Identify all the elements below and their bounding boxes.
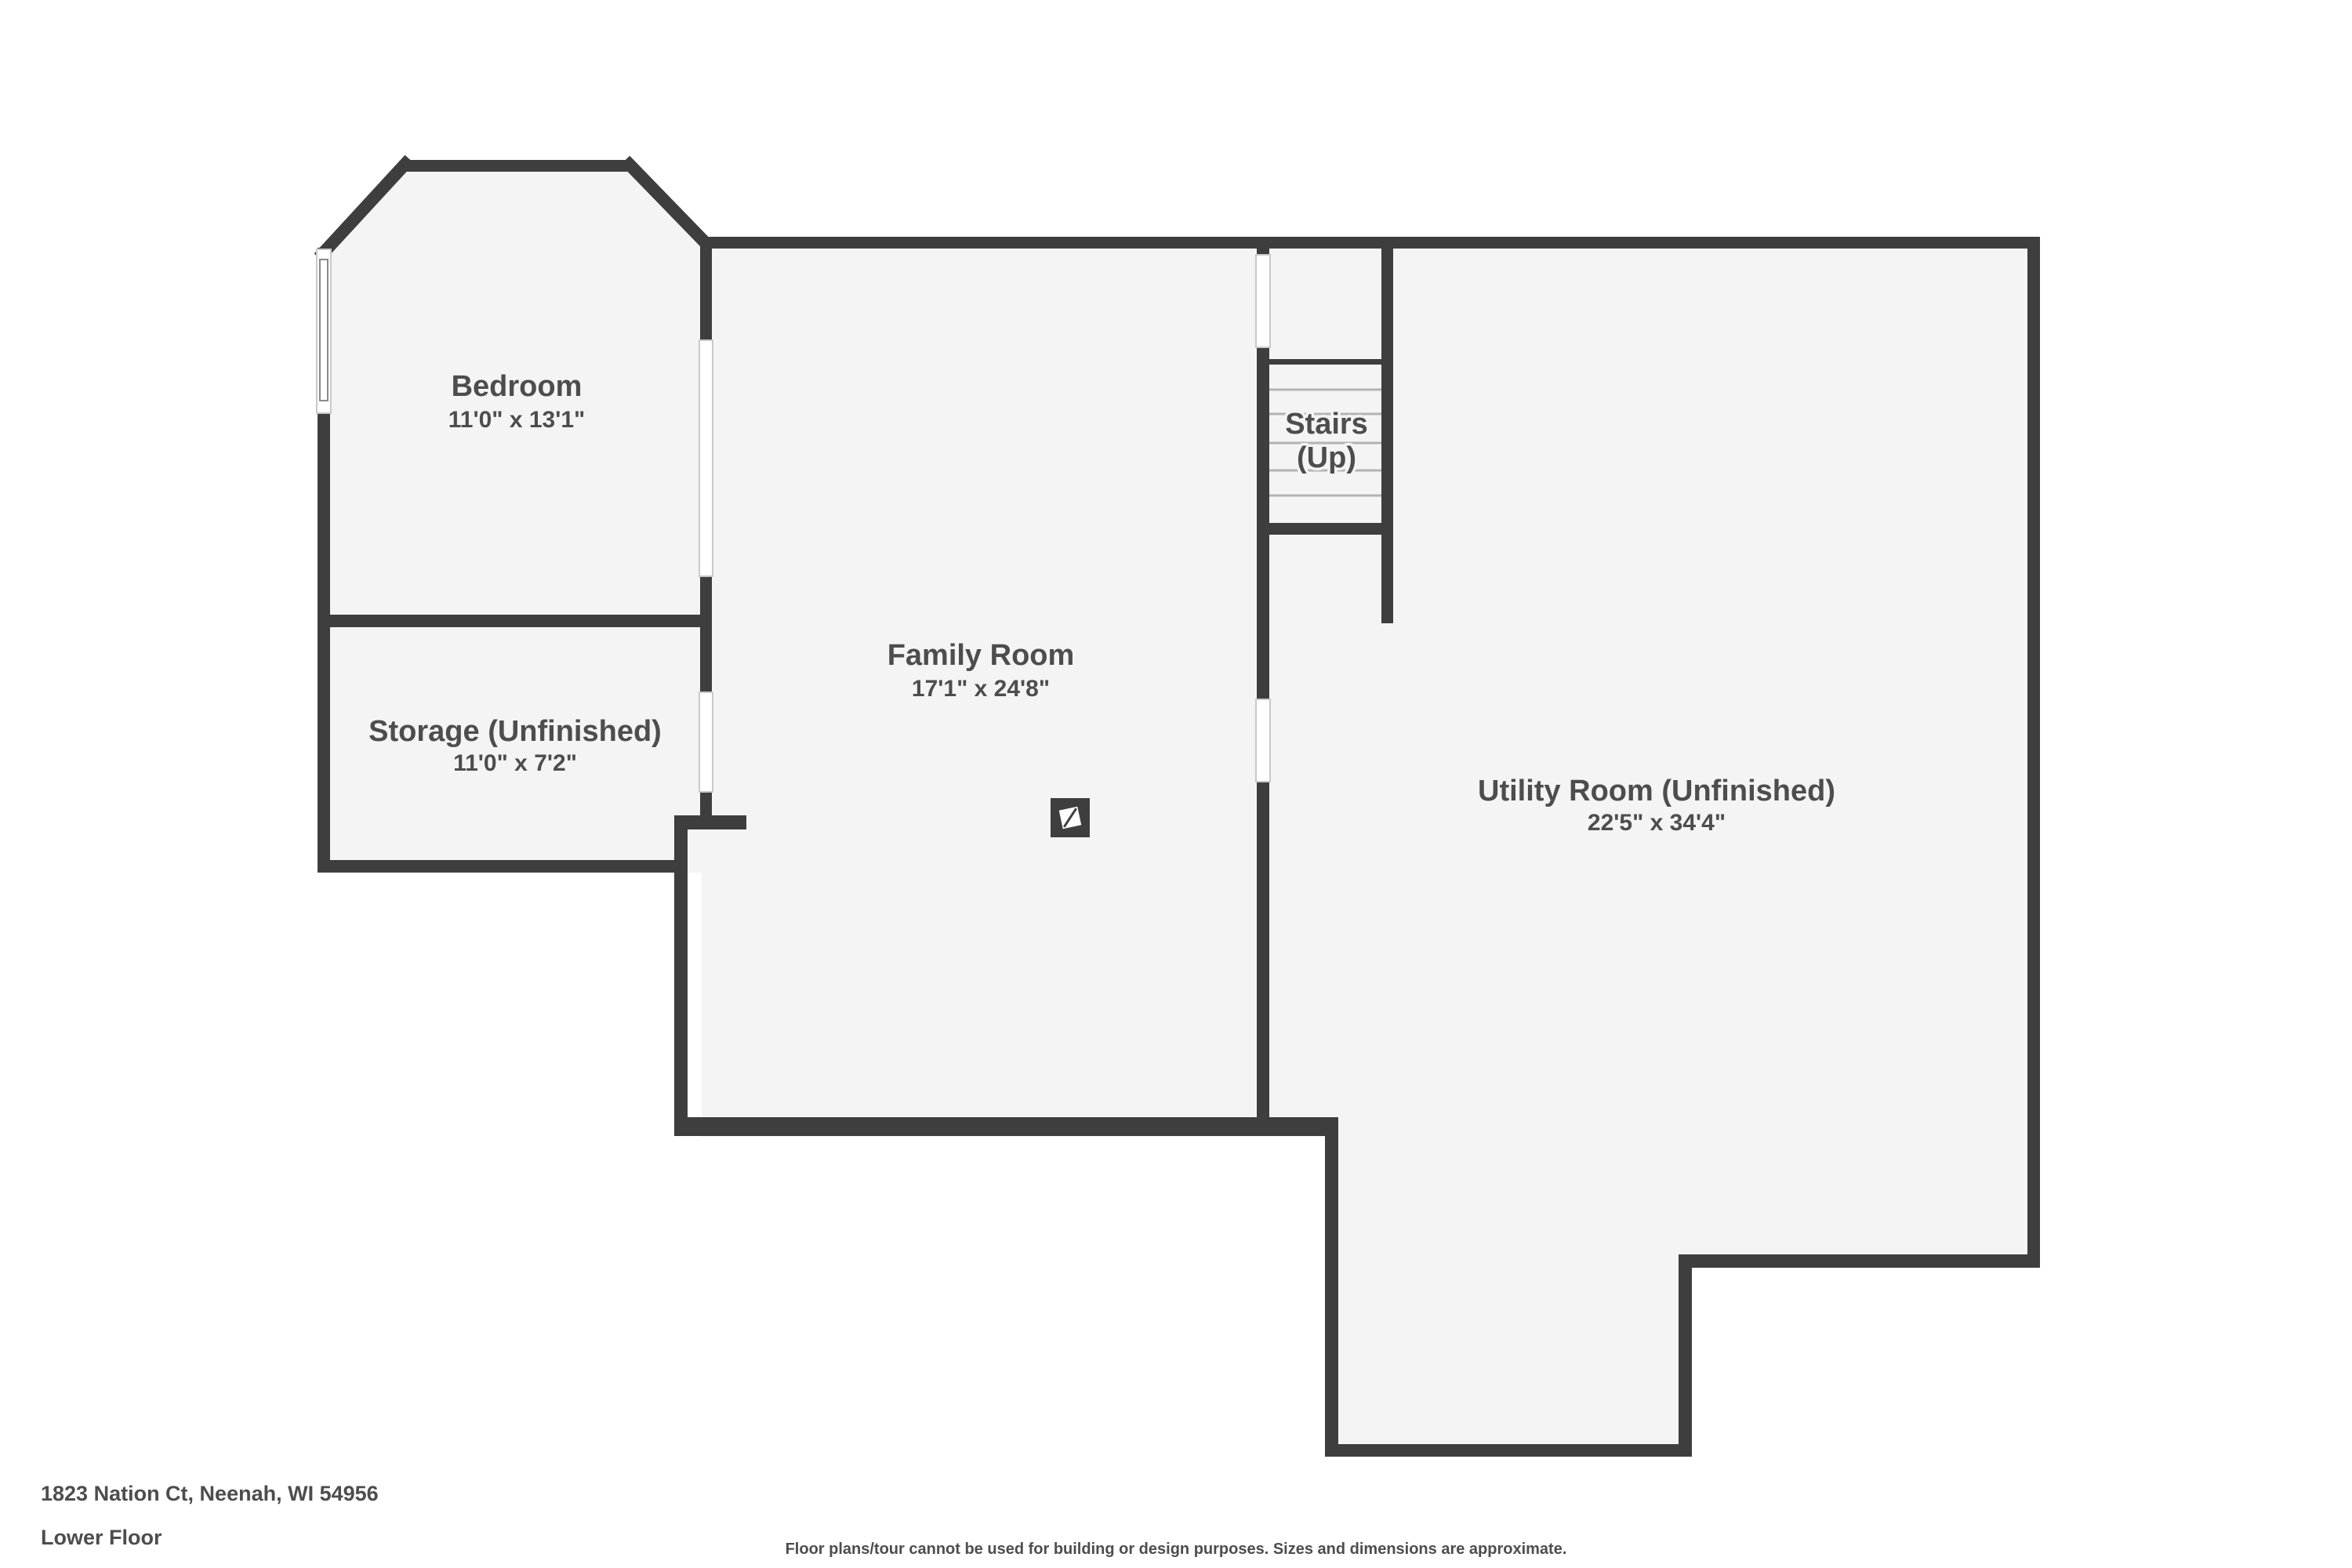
stairs-bottom-wall bbox=[1257, 523, 1393, 535]
family-utility-divider-wall bbox=[1257, 237, 1269, 1117]
utility-door-opening bbox=[1256, 699, 1270, 782]
utility-bottom-wall bbox=[1679, 1254, 2040, 1268]
extension-bottom-wall bbox=[1325, 1444, 1692, 1457]
bedroom-label: Bedroom bbox=[452, 370, 583, 403]
support-column-icon bbox=[1051, 798, 1090, 837]
storage-dimensions: 11'0" x 7'2" bbox=[453, 750, 577, 776]
bedroom-storage-divider-wall bbox=[318, 615, 712, 627]
stairs-direction: (Up) bbox=[1297, 441, 1356, 474]
outer-top-wall bbox=[702, 237, 2040, 249]
disclaimer-text: Floor plans/tour cannot be used for buil… bbox=[786, 1541, 1567, 1558]
footer: 1823 Nation Ct, Neenah, WI 54956 Lower F… bbox=[41, 1482, 1566, 1558]
property-address: 1823 Nation Ct, Neenah, WI 54956 bbox=[41, 1482, 379, 1505]
stairs-entry-opening bbox=[1256, 255, 1270, 347]
floor-plan: Bedroom 11'0" x 13'1" Storage (Unfinishe… bbox=[0, 0, 2352, 1568]
utility-room-dimensions: 22'5" x 34'4" bbox=[1588, 810, 1726, 836]
bedroom-window bbox=[317, 249, 331, 413]
bedroom-top-wall bbox=[401, 160, 627, 172]
family-room-label: Family Room bbox=[887, 639, 1075, 672]
stair-run-edge bbox=[1264, 359, 1387, 365]
utility-room-label: Utility Room (Unfinished) bbox=[1478, 775, 1835, 808]
stairs-label: Stairs bbox=[1285, 408, 1368, 441]
stairs-right-wall bbox=[1381, 237, 1393, 623]
floor-level-label: Lower Floor bbox=[41, 1526, 162, 1549]
storage-bottom-wall bbox=[318, 860, 686, 873]
outer-right-wall bbox=[2027, 237, 2040, 1268]
family-room-dimensions: 17'1" x 24'8" bbox=[912, 676, 1050, 702]
bedroom-door-opening bbox=[699, 340, 713, 576]
storage-door-opening bbox=[699, 692, 713, 792]
storage-label: Storage (Unfinished) bbox=[368, 715, 662, 748]
extension-left-wall bbox=[1325, 1117, 1338, 1457]
bedroom-dimensions: 11'0" x 13'1" bbox=[448, 407, 586, 433]
floor-plan-page: Bedroom 11'0" x 13'1" Storage (Unfinishe… bbox=[0, 0, 2352, 1568]
extension-right-wall bbox=[1679, 1254, 1692, 1457]
main-floor bbox=[702, 237, 2040, 1457]
family-bottom-wall bbox=[674, 1117, 1338, 1136]
